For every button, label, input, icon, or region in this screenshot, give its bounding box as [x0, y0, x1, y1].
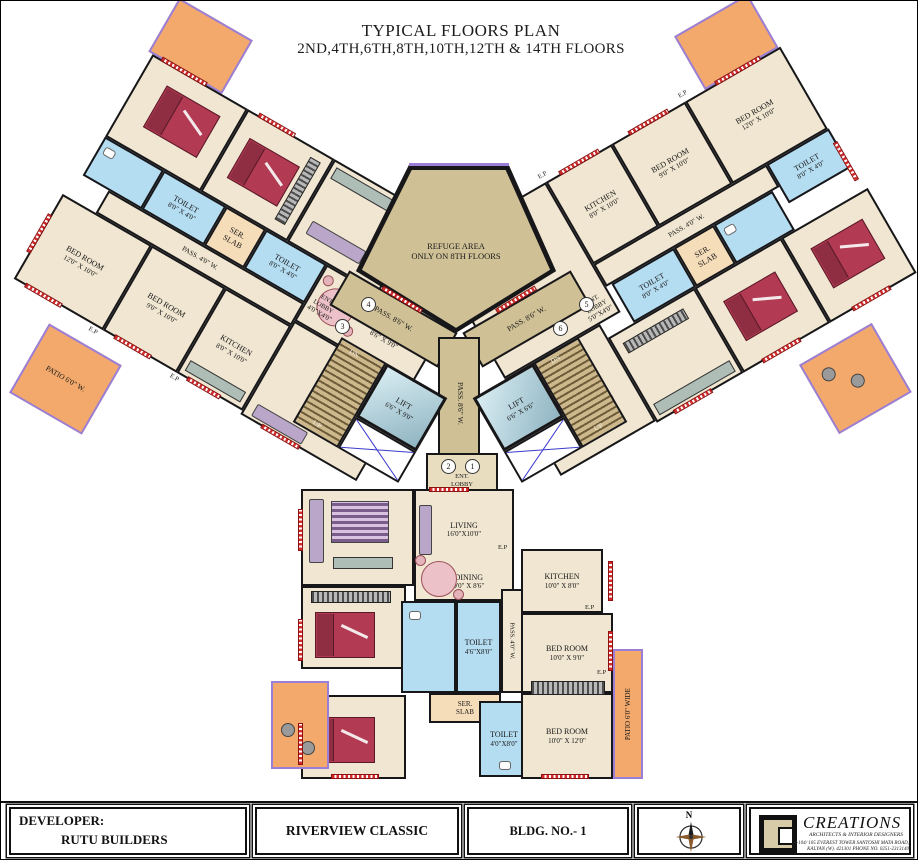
lift-label: LIFT 6'6" X 9'0" — [384, 392, 420, 423]
window-marker — [608, 561, 613, 601]
room-label: KITCHEN 8'0" X 10'0" — [583, 188, 622, 221]
sofa-icon — [309, 499, 324, 563]
tv-unit-icon — [311, 591, 391, 603]
room-label: LIVING 16'0"X10'0" — [447, 521, 481, 539]
room-label: BED ROOM 12'0" X 10'0" — [60, 244, 105, 280]
ep-label: E.P — [585, 604, 594, 611]
room-label: TOILET 8'0" X 4'0" — [166, 192, 202, 223]
unit-number-1: 1 — [465, 459, 480, 474]
room-label: SER. SLAB — [456, 700, 474, 717]
slab-line2: SLAB — [456, 708, 474, 716]
room-dims: 10'0" X 12'0" — [546, 737, 588, 745]
room-label: BED ROOM 10'0" X 12'0" — [546, 727, 588, 745]
footer-project-box: RIVERVIEW CLASSIC — [255, 807, 459, 855]
project-name: RIVERVIEW CLASSIC — [286, 823, 428, 839]
refuge-top-edge — [409, 163, 509, 166]
developer-label: DEVELOPER: — [19, 813, 104, 829]
compass-rose-icon — [673, 820, 709, 854]
dining-table-icon — [421, 561, 457, 597]
ep-label: E.P — [677, 89, 688, 100]
bed-icon — [315, 612, 375, 658]
bottom-wing-bedroom-2: BED ROOM 10'0" X 12'0" — [521, 693, 613, 779]
room-name: TOILET — [490, 730, 518, 739]
right-wing-lower-patio — [799, 323, 912, 434]
patio-chair-icon — [848, 371, 867, 390]
compass-north-label: N — [639, 810, 739, 820]
room-label: BED ROOM 9'0" X 10'0" — [142, 291, 187, 327]
toilet-fixture-icon — [499, 761, 511, 770]
room-label: TOILET 8'0" X 4'0" — [267, 251, 303, 282]
patio-label: PATIO 6'0" WIDE — [624, 688, 632, 740]
firm-tagline: ARCHITECTS & INTERIOR DESIGNERS — [809, 832, 903, 838]
chair-icon — [415, 555, 426, 566]
window-marker — [298, 509, 303, 551]
patio-chair-icon — [301, 741, 315, 755]
kitchen-platform-icon — [333, 557, 393, 569]
title-line2: 2ND,4TH,6TH,8TH,10TH,12TH & 14TH FLOORS — [231, 41, 691, 58]
footer-building-box: BLDG. NO.- 1 — [467, 807, 629, 855]
room-label: TOILET 4'0"X8'0" — [490, 730, 518, 748]
unit-number-3: 3 — [335, 319, 350, 334]
refuge-line2: ONLY ON 8TH FLOORS — [386, 251, 526, 261]
unit-number-5: 5 — [579, 297, 594, 312]
bottom-wing-toilet-1: TOILET 4'6"X8'0" — [456, 601, 501, 693]
building-number: BLDG. NO.- 1 — [509, 824, 586, 839]
slab-line1: SER. — [456, 700, 474, 708]
passage-label: PASS. 4'0" W. — [508, 622, 516, 659]
window-marker — [429, 487, 469, 492]
room-label: TOILET 8'0" X 4'0" — [791, 150, 827, 181]
unit-number-2: 2 — [441, 459, 456, 474]
bottom-wing-furn-toilet — [401, 601, 456, 693]
bottom-wing-furn-hall — [301, 489, 414, 586]
room-dims: 10'0" X 8'0" — [544, 582, 579, 590]
page-title: TYPICAL FLOORS PLAN 2ND,4TH,6TH,8TH,10TH… — [231, 21, 691, 58]
room-name: DINING — [453, 573, 484, 582]
bed-icon — [723, 271, 798, 341]
room-label: KITCHEN 8'0" X 10'0" — [214, 333, 253, 366]
bed-icon — [810, 219, 885, 289]
rug-icon — [331, 501, 389, 543]
firm-name: CREATIONS — [803, 813, 901, 833]
footer-compass-box: N — [637, 807, 741, 855]
toilet-fixture-icon — [409, 611, 421, 620]
room-label: BED ROOM 9'0" X 10'0" — [649, 146, 694, 182]
footer-architect-box: CREATIONS ARCHITECTS & INTERIOR DESIGNER… — [749, 807, 911, 855]
left-wing-lower-patio: PATIO 6'0" W. — [9, 323, 122, 434]
window-marker — [541, 774, 589, 779]
title-line1: TYPICAL FLOORS PLAN — [231, 21, 691, 41]
window-marker — [298, 619, 303, 661]
window-marker — [298, 723, 303, 765]
room-name: TOILET — [465, 638, 493, 647]
patio-label: PATIO 6'0" W. — [44, 364, 87, 394]
room-dims: 10'0" X 9'0" — [546, 654, 588, 662]
room-dims: 4'0"X8'0" — [490, 740, 518, 748]
chair-icon — [453, 589, 464, 600]
footer-divider — [1, 801, 918, 803]
bed-icon — [143, 85, 221, 158]
room-name: LIVING — [447, 521, 481, 530]
ep-label: E.P — [597, 669, 606, 676]
room-label: TOILET 8'0" X 4'0" — [636, 270, 672, 301]
footer-developer-box: DEVELOPER: RUTU BUILDERS — [9, 807, 247, 855]
bottom-wing-right-patio: PATIO 6'0" WIDE — [613, 649, 643, 779]
patio-chair-icon — [281, 723, 295, 737]
toilet-fixture-icon — [102, 146, 117, 160]
room-label: BED ROOM 12'0" X 10'0" — [734, 97, 779, 133]
window-marker — [331, 774, 379, 779]
lift-label: LIFT 6'6" X 6'6" — [501, 392, 537, 423]
chair-icon — [321, 273, 336, 288]
refuge-label: REFUGE AREA ONLY ON 8TH FLOORS — [386, 241, 526, 261]
ep-label: E.P — [498, 544, 507, 551]
room-label: KITCHEN 10'0" X 8'0" — [544, 572, 579, 590]
room-label: SER. SLAB — [691, 243, 718, 270]
window-marker — [608, 631, 613, 671]
kitchen-platform-icon — [653, 360, 736, 415]
room-name: KITCHEN — [544, 572, 579, 581]
room-name: BED ROOM — [546, 727, 588, 736]
lobby-line1: ENT. — [448, 473, 475, 481]
room-dims: 4'6"X8'0" — [465, 648, 493, 656]
bottom-wing-furn-bedroom-1 — [301, 586, 406, 669]
passage-label: PASS. 8'6" W. — [455, 382, 464, 425]
unit-number-4: 4 — [361, 297, 376, 312]
floor-plan-sheet: TYPICAL FLOORS PLAN 2ND,4TH,6TH,8TH,10TH… — [0, 0, 918, 860]
patio-chair-icon — [819, 365, 838, 384]
room-name: BED ROOM — [546, 644, 588, 653]
refuge-line1: REFUGE AREA — [386, 241, 526, 251]
unit-number-6: 6 — [553, 321, 568, 336]
room-label: SER. SLAB — [221, 224, 248, 251]
bottom-wing-passage: PASS. 4'0" W. — [501, 589, 523, 693]
sofa-icon — [419, 505, 432, 555]
room-label: BED ROOM 10'0" X 9'0" — [546, 644, 588, 662]
toilet-fixture-icon — [723, 223, 738, 237]
firm-address-2: KALYAN (W). 421301 PHONE NO. 0251-231314… — [757, 847, 909, 854]
wardrobe-icon — [531, 681, 605, 695]
room-label: TOILET 4'6"X8'0" — [465, 638, 493, 656]
room-dims: 16'0"X10'0" — [447, 530, 481, 538]
developer-name: RUTU BUILDERS — [61, 832, 168, 848]
